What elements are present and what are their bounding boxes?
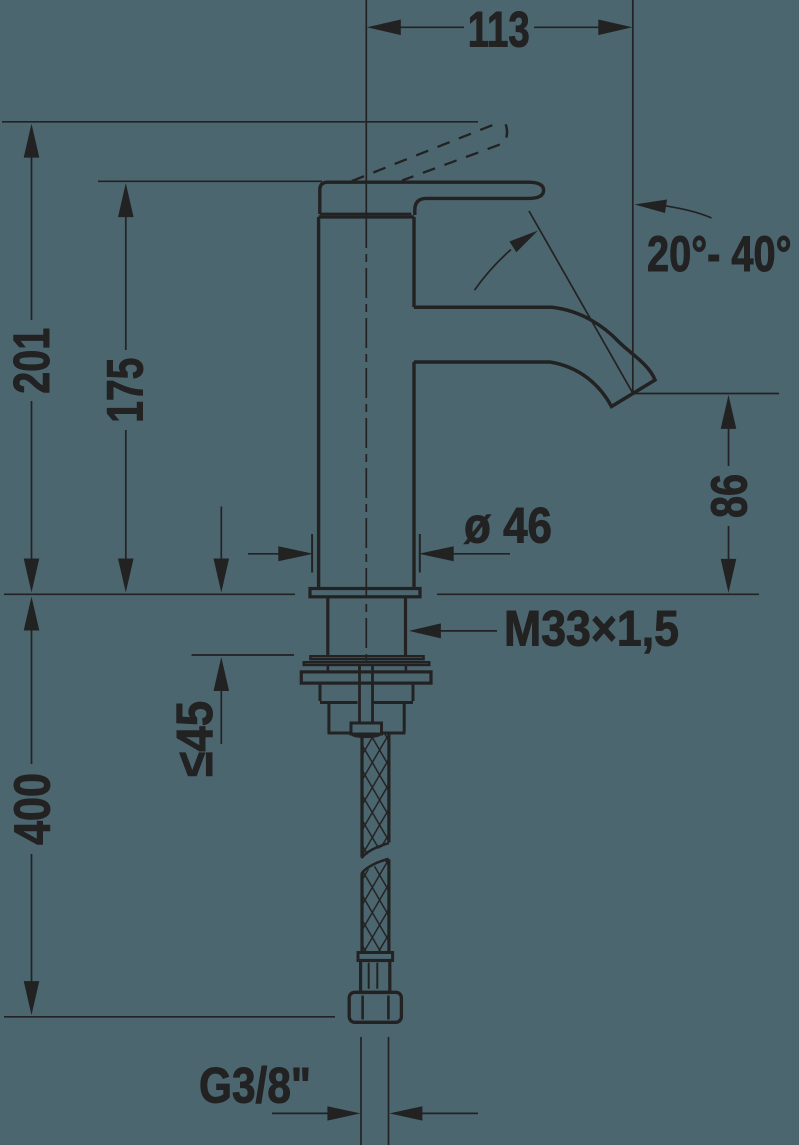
svg-text:M33×1,5: M33×1,5 <box>504 600 679 656</box>
svg-text:175: 175 <box>97 358 154 423</box>
svg-text:201: 201 <box>3 328 60 394</box>
svg-text:≤45: ≤45 <box>166 701 223 777</box>
svg-text:20°- 40°: 20°- 40° <box>647 226 792 282</box>
svg-text:86: 86 <box>700 474 757 518</box>
svg-text:400: 400 <box>4 773 61 845</box>
svg-text:ø 46: ø 46 <box>464 498 552 554</box>
svg-text:113: 113 <box>468 1 530 57</box>
svg-text:G3/8": G3/8" <box>199 1058 311 1114</box>
